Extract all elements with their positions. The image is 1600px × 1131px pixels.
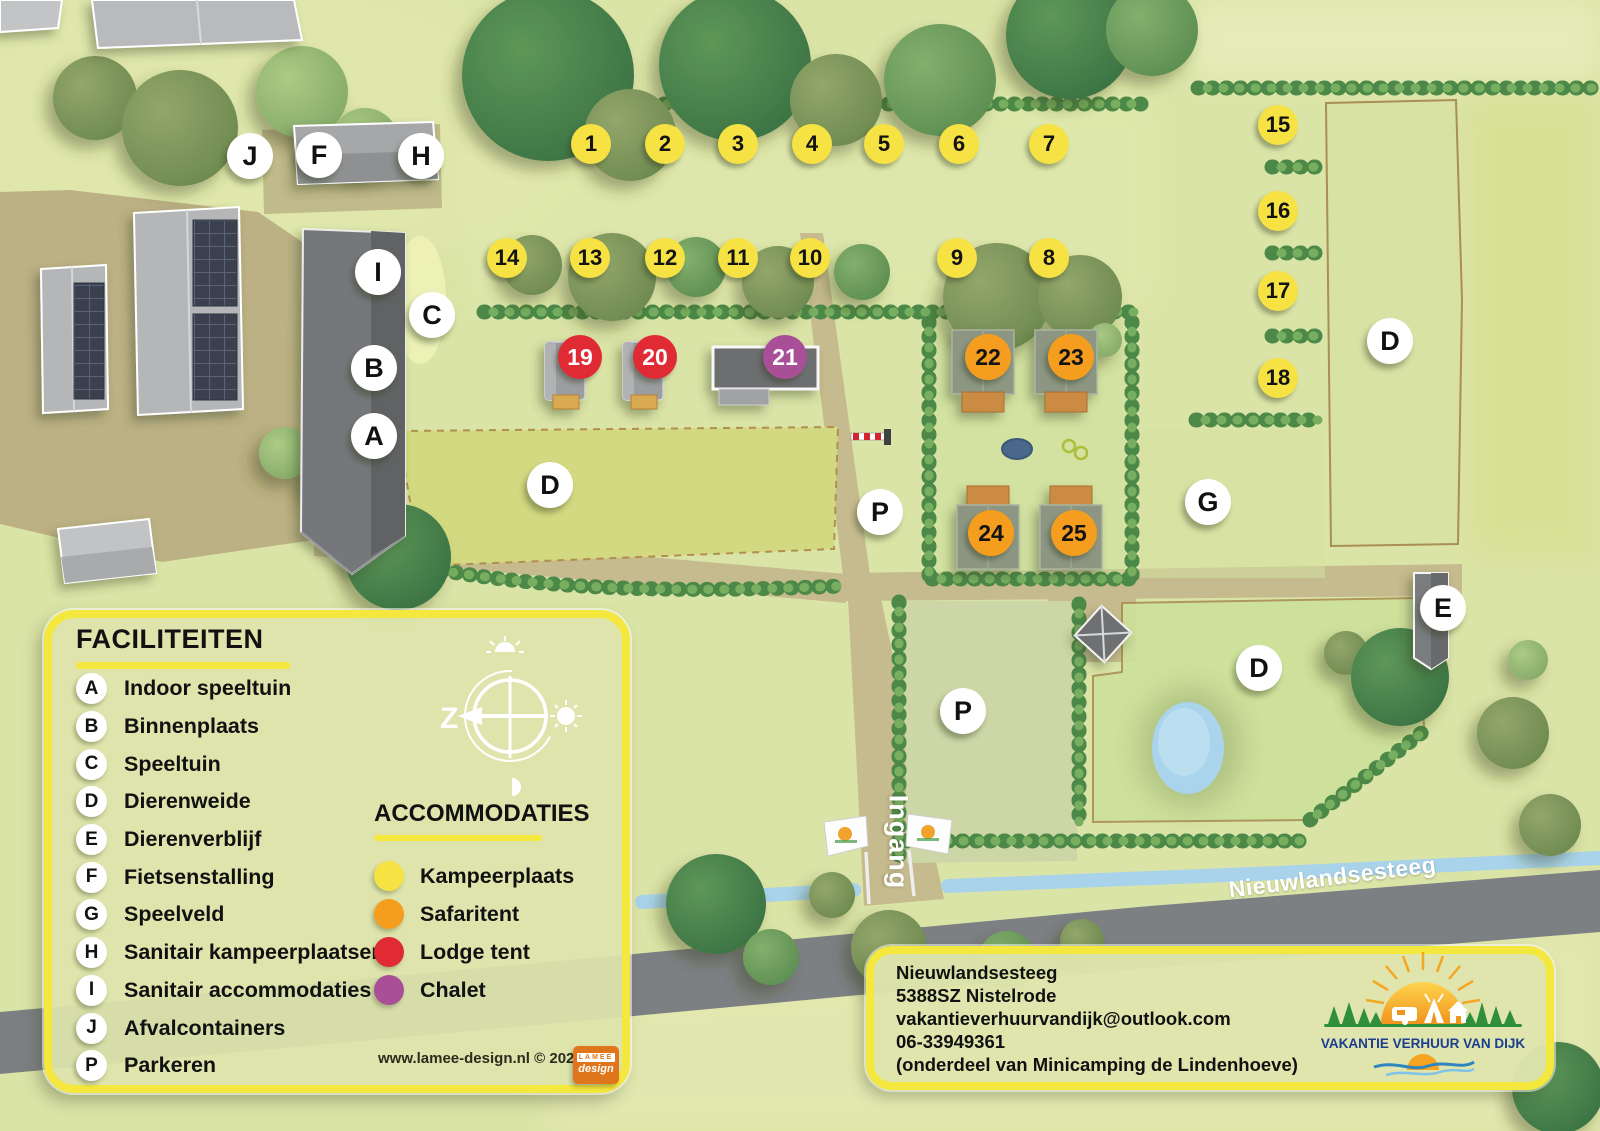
contact-street: Nieuwlandsesteeg (896, 961, 1298, 984)
camp-spot-2: 2 (645, 124, 685, 164)
accommodations-legend: ACCOMMODATIES Kampeerplaats Safaritent L… (374, 800, 590, 1009)
facility-key: A (76, 673, 107, 704)
moon-icon (512, 778, 521, 796)
badge-H-sanitair: H (398, 133, 444, 179)
facility-label: Speeltuin (124, 752, 221, 777)
badge-B-binnenplaats: B (351, 345, 397, 391)
facility-key: E (76, 824, 107, 855)
lamee-design-logo: LAMEE design (573, 1046, 619, 1084)
camp-spot-16: 16 (1258, 191, 1298, 231)
facility-row-I: ISanitair accommodaties (76, 972, 385, 1010)
facility-row-H: HSanitair kampeerplaatsen (76, 934, 385, 972)
badge-J-afvalcontainers: J (227, 133, 273, 179)
lodge-tent-swatch (374, 937, 404, 967)
lodge-20-porch (631, 395, 657, 409)
badge-D-dierenweide-south: D (1236, 645, 1282, 691)
facilities-title-underline (76, 662, 290, 669)
facility-key: B (76, 711, 107, 742)
accommodations-title-underline (374, 835, 542, 841)
safaritent-swatch (374, 899, 404, 929)
accommodation-row-chalet: Chalet (374, 971, 590, 1009)
facility-label: Binnenplaats (124, 714, 259, 739)
brand-logo: VAKANTIE VERHUUR VAN DIJK (1318, 952, 1532, 1086)
facility-label: Indoor speeltuin (124, 676, 291, 701)
accommodation-row-kampeerplaats: Kampeerplaats (374, 857, 590, 895)
camp-spot-10: 10 (790, 238, 830, 278)
camp-spot-5: 5 (864, 124, 904, 164)
accommodation-label: Kampeerplaats (420, 864, 574, 889)
facility-label: Parkeren (124, 1053, 216, 1078)
safari-spot-23: 23 (1048, 334, 1094, 380)
badge-C-speeltuin: C (409, 292, 455, 338)
accommodations-list: Kampeerplaats Safaritent Lodge tent Chal… (374, 857, 590, 1009)
facility-key: C (76, 749, 107, 780)
entrance-flag-left (822, 816, 876, 908)
facilities-title: FACILITEITEN (76, 624, 264, 655)
facility-label: Sanitair accommodaties (124, 978, 371, 1003)
small-pond (1002, 439, 1032, 459)
sunrise-icon (486, 636, 524, 652)
camp-spot-12: 12 (645, 238, 685, 278)
facility-label: Fietsenstalling (124, 865, 275, 890)
facility-key: H (76, 937, 107, 968)
facility-label: Dierenverblijf (124, 827, 261, 852)
solar-panels (193, 220, 237, 306)
facility-label: Sanitair kampeerplaatsen (124, 940, 385, 965)
camp-spot-18: 18 (1258, 358, 1298, 398)
facility-key: P (76, 1050, 107, 1081)
camp-spot-7: 7 (1029, 124, 1069, 164)
solar-panels (74, 283, 104, 399)
safari-spot-24: 24 (968, 510, 1014, 556)
facility-row-J: JAfvalcontainers (76, 1009, 385, 1047)
contact-email: vakantieverhuurvandijk@outlook.com (896, 1007, 1298, 1030)
designer-credit: www.lamee-design.nl © 2025 (378, 1050, 583, 1067)
speelveld-field (1140, 430, 1325, 578)
sun-icon (550, 700, 582, 732)
lodge-spot-19: 19 (558, 335, 602, 379)
badge-E-dierenverblijf: E (1420, 585, 1466, 631)
facility-row-P: PParkeren (76, 1047, 385, 1085)
facility-key: I (76, 975, 107, 1006)
camp-spot-11: 11 (718, 238, 758, 278)
badge-P-parkeren: P (940, 688, 986, 734)
lodge-spot-20: 20 (633, 335, 677, 379)
accommodations-title: ACCOMMODATIES (374, 800, 590, 828)
contact-lines: Nieuwlandsesteeg 5388SZ Nistelrode vakan… (896, 961, 1298, 1076)
compass-letter: Z (440, 702, 458, 735)
badge-P-parkeren-entrance: P (857, 489, 903, 535)
facility-label: Afvalcontainers (124, 1016, 285, 1041)
badge-G-speelveld: G (1185, 479, 1231, 525)
contact-info-box: Nieuwlandsesteeg 5388SZ Nistelrode vakan… (866, 946, 1554, 1090)
facility-label: Dierenweide (124, 789, 251, 814)
facility-row-F: FFietsenstalling (76, 858, 385, 896)
accommodation-label: Lodge tent (420, 940, 530, 965)
facility-row-D: DDierenweide (76, 783, 385, 821)
camp-spot-3: 3 (718, 124, 758, 164)
lodge-19-porch (553, 395, 579, 409)
camp-spot-6: 6 (939, 124, 979, 164)
camp-spot-4: 4 (792, 124, 832, 164)
badge-F-fietsenstalling: F (296, 132, 342, 178)
safari-spot-22: 22 (965, 334, 1011, 380)
chalet-annex (719, 389, 769, 405)
facility-key: D (76, 786, 107, 817)
accommodation-row-safaritent: Safaritent (374, 895, 590, 933)
badge-I-sanitair: I (355, 249, 401, 295)
brand-name: VAKANTIE VERHUUR VAN DIJK (1321, 1036, 1526, 1051)
safari-spot-25: 25 (1051, 510, 1097, 556)
camp-spot-17: 17 (1258, 271, 1298, 311)
dierenweide-field-west (398, 427, 838, 566)
facilities-list: AIndoor speeltuin BBinnenplaats CSpeeltu… (76, 670, 385, 1085)
campsite-map: 1 2 3 4 5 6 7 8 9 10 11 12 13 14 15 16 1… (0, 0, 1600, 1131)
north-arrow (458, 707, 482, 725)
facility-row-G: GSpeelveld (76, 896, 385, 934)
accommodation-row-lodge-tent: Lodge tent (374, 933, 590, 971)
lamee-logo-sub: design (573, 1064, 619, 1075)
facility-key: F (76, 862, 107, 893)
camp-spot-14: 14 (487, 238, 527, 278)
facility-row-A: AIndoor speeltuin (76, 670, 385, 708)
building-roof-corner (0, 0, 62, 32)
camp-spot-1: 1 (571, 124, 611, 164)
badge-D-dierenweide-west: D (527, 462, 573, 508)
facility-label: Speelveld (124, 902, 224, 927)
badge-D-dierenweide-east: D (1367, 318, 1413, 364)
kampeerplaats-swatch (374, 861, 404, 891)
facility-row-E: EDierenverblijf (76, 821, 385, 859)
compass-rose: Z (438, 636, 588, 801)
facility-key: G (76, 899, 107, 930)
camp-spot-15: 15 (1258, 105, 1298, 145)
contact-note: (onderdeel van Minicamping de Lindenhoev… (896, 1053, 1298, 1076)
lamee-logo-text: LAMEE (577, 1053, 616, 1062)
facility-row-B: BBinnenplaats (76, 708, 385, 746)
camp-spot-9: 9 (937, 238, 977, 278)
solar-panels (193, 314, 237, 400)
entrance-label: Ingang (883, 795, 914, 890)
accommodation-label: Safaritent (420, 902, 519, 927)
facility-key: J (76, 1013, 107, 1044)
chalet-spot-21: 21 (763, 335, 807, 379)
badge-A-indoor-speeltuin: A (351, 413, 397, 459)
accommodation-label: Chalet (420, 978, 486, 1003)
camp-spot-8: 8 (1029, 238, 1069, 278)
contact-city: 5388SZ Nistelrode (896, 984, 1298, 1007)
camp-spot-13: 13 (570, 238, 610, 278)
facility-row-C: CSpeeltuin (76, 745, 385, 783)
chalet-swatch (374, 975, 404, 1005)
contact-phone: 06-33949361 (896, 1030, 1298, 1053)
